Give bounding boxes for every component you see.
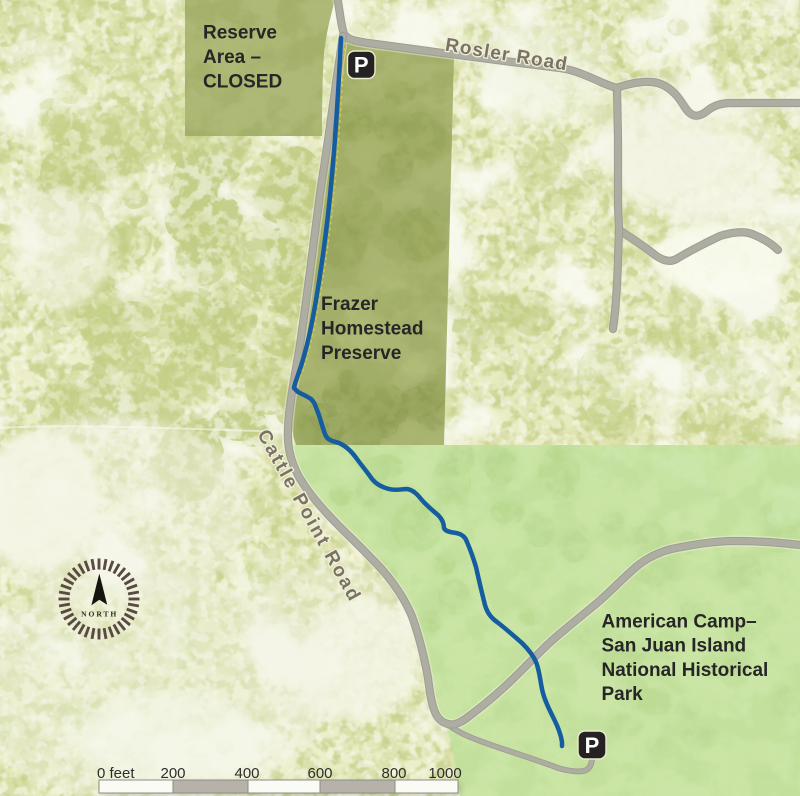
svg-text:400: 400	[234, 765, 259, 782]
svg-text:National Historical: National Historical	[602, 660, 769, 681]
svg-text:NORTH: NORTH	[81, 610, 118, 619]
svg-text:1000: 1000	[428, 765, 461, 782]
svg-text:San Juan Island: San Juan Island	[602, 636, 747, 657]
svg-text:Park: Park	[602, 684, 644, 705]
svg-text:P: P	[354, 53, 369, 78]
svg-text:P: P	[585, 733, 600, 758]
svg-text:0 feet: 0 feet	[97, 765, 135, 782]
svg-text:Frazer: Frazer	[321, 294, 379, 315]
svg-text:600: 600	[307, 765, 332, 782]
svg-text:American Camp–: American Camp–	[602, 612, 757, 633]
svg-text:Homestead: Homestead	[321, 319, 423, 340]
svg-text:200: 200	[160, 765, 185, 782]
svg-text:Reserve: Reserve	[203, 23, 277, 44]
svg-text:Preserve: Preserve	[321, 343, 401, 364]
svg-text:CLOSED: CLOSED	[203, 72, 282, 93]
svg-text:Area –: Area –	[203, 47, 261, 68]
svg-text:800: 800	[381, 765, 406, 782]
